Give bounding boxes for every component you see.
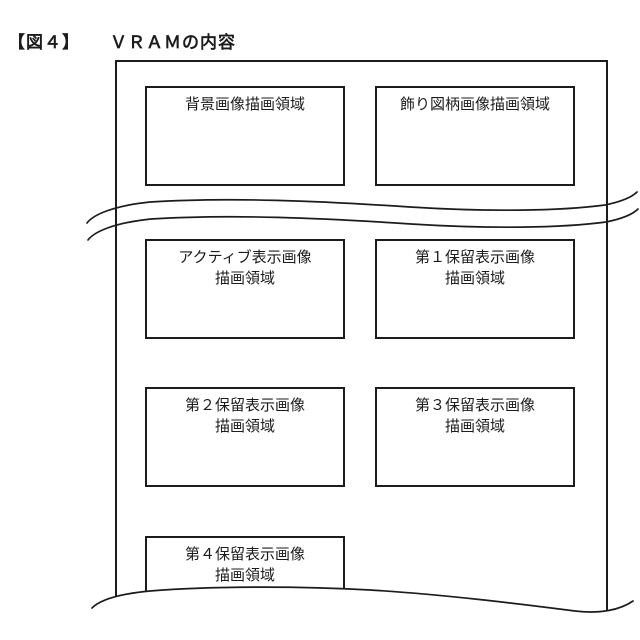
figure-title: ＶＲＡＭの内容 (110, 28, 236, 53)
region-label: 描画領域 (377, 416, 573, 437)
region-label: 背景画像描画領域 (147, 94, 343, 115)
patent-figure-page: 【図４】 ＶＲＡＭの内容 背景画像描画領域 飾り図柄画像描画領域 アクティブ表示… (0, 0, 640, 640)
region-label: 描画領域 (147, 268, 343, 289)
region-box-hold4-display-image: 第４保留表示画像 描画領域 (145, 536, 345, 636)
region-label: 第３保留表示画像 (377, 395, 573, 416)
region-box-background-image: 背景画像描画領域 (145, 86, 345, 186)
region-box-hold1-display-image: 第１保留表示画像 描画領域 (375, 239, 575, 339)
figure-number-label: 【図４】 (8, 28, 80, 53)
region-label: 第１保留表示画像 (377, 247, 573, 268)
region-box-active-display-image: アクティブ表示画像 描画領域 (145, 239, 345, 339)
region-label: 描画領域 (147, 416, 343, 437)
region-label: 描画領域 (147, 565, 343, 586)
region-label: 飾り図柄画像描画領域 (377, 94, 573, 115)
region-label: アクティブ表示画像 (147, 247, 343, 268)
region-box-hold2-display-image: 第２保留表示画像 描画領域 (145, 387, 345, 487)
region-label: 第２保留表示画像 (147, 395, 343, 416)
region-label: 第４保留表示画像 (147, 544, 343, 565)
region-box-hold3-display-image: 第３保留表示画像 描画領域 (375, 387, 575, 487)
region-label: 描画領域 (377, 268, 573, 289)
region-box-decorative-pattern-image: 飾り図柄画像描画領域 (375, 86, 575, 186)
